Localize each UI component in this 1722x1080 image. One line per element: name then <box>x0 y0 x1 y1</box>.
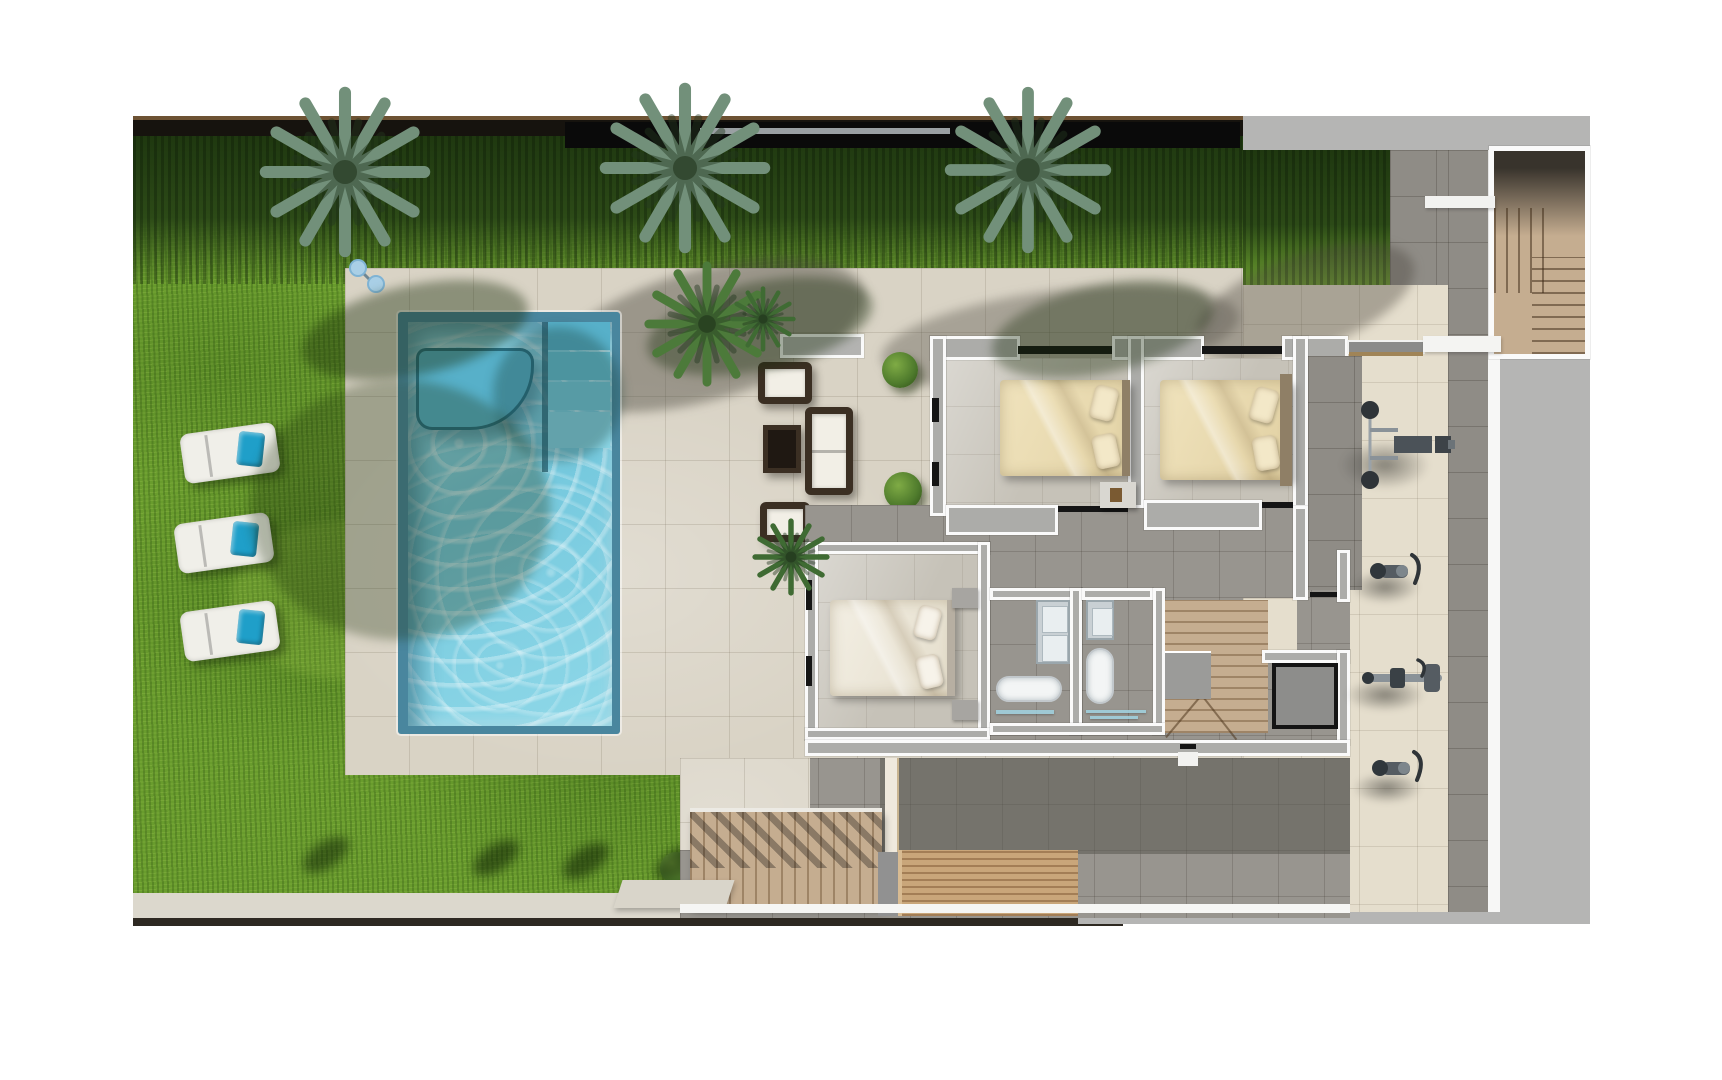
round-bush <box>882 352 918 388</box>
headboard <box>1280 374 1292 486</box>
upper-staircase-spur-wall <box>1425 196 1495 208</box>
sink <box>1042 635 1068 662</box>
wall-bedroom3-top <box>805 542 990 554</box>
wall-gym-access <box>1337 550 1350 602</box>
upper-staircase-enclosure <box>1489 146 1590 359</box>
bed-bedroom3 <box>830 600 955 696</box>
bathroom1-vanity <box>1036 600 1070 664</box>
wall-bedroom3-right <box>978 542 990 740</box>
elevator <box>1272 663 1338 729</box>
wall-bathrooms-divider <box>1070 588 1082 735</box>
window-bedroom3-left <box>806 656 812 686</box>
nightstand <box>1100 482 1136 508</box>
lounger-backrest <box>204 613 213 655</box>
rowing-machine-icon <box>1360 652 1448 704</box>
floor-plan-rendering <box>0 0 1722 1080</box>
lower-terrace-shadow <box>880 758 1350 854</box>
bathroom1-glass-shelf <box>996 710 1054 714</box>
window-bedroom1-left <box>932 462 939 486</box>
nightstand <box>952 588 978 608</box>
lounger-towel <box>236 609 265 646</box>
palm-tree-icon <box>263 90 427 254</box>
palm-tree-icon <box>730 286 796 352</box>
lounger-backrest <box>204 435 213 477</box>
tree-shadow <box>250 380 550 640</box>
window-bedroom1-left <box>932 398 939 422</box>
lower-wall-line <box>680 904 1350 913</box>
lounger-backrest <box>198 525 207 567</box>
lower-terrace-wall <box>885 758 897 854</box>
wall-bedroom1-left <box>930 336 946 516</box>
palm-tree-icon <box>752 518 830 596</box>
bathroom1-bathtub <box>996 676 1062 702</box>
wall-bathrooms-bottom <box>990 723 1165 735</box>
staircase-closet <box>1165 653 1211 699</box>
wall-bedroom2-right <box>1293 336 1308 508</box>
staircase-railing-shadows <box>690 812 882 868</box>
coffee-table <box>763 425 801 473</box>
wall-bathroom2-right <box>1153 588 1165 735</box>
sofa <box>805 407 853 495</box>
bathroom2-shower-glass <box>1086 710 1146 713</box>
exercise-bike-icon <box>1366 545 1430 597</box>
wall-bedroom3-bottom <box>805 728 990 740</box>
bathroom2-shower-glass <box>1090 716 1138 719</box>
wall-bedroom1-bottom <box>946 505 1058 535</box>
staircase-winder-line <box>1165 694 1203 738</box>
staircase-winder-line <box>1199 692 1238 741</box>
wall-bedroom2-right-lower <box>1293 506 1308 600</box>
wall-bedroom2-bottom <box>1144 500 1262 530</box>
sofa-cushion-divider <box>812 450 846 453</box>
nightstand-tray <box>1110 488 1122 502</box>
bed-bedroom1 <box>1000 380 1130 476</box>
headboard <box>947 600 955 696</box>
headboard <box>1122 380 1130 476</box>
gym-terrace-shadow-band <box>1448 150 1488 918</box>
wall-bathroom1-top <box>990 588 1082 600</box>
bed-bedroom2 <box>1160 380 1292 480</box>
gym-entry-landing <box>1423 336 1501 352</box>
sliding-door-bedroom2 <box>1262 502 1293 508</box>
window-top <box>1202 346 1284 354</box>
bathroom2-vanity <box>1086 600 1114 640</box>
rear-door-landing <box>1178 752 1198 766</box>
sink <box>1092 608 1113 636</box>
nightstand <box>952 700 978 720</box>
bathroom2-bathtub <box>1086 648 1114 704</box>
upper-staircase-treads <box>1532 257 1585 354</box>
garden-path-edge <box>133 918 1123 926</box>
sink <box>1042 606 1068 633</box>
rear-door <box>1180 744 1196 749</box>
palm-tree-icon <box>948 90 1108 250</box>
exercise-bike-icon <box>1368 742 1432 794</box>
wall-bathroom2-top <box>1082 588 1153 600</box>
palm-tree-icon <box>603 86 767 250</box>
wall-house-bottom <box>805 740 1350 756</box>
bench-press-icon <box>1358 398 1456 492</box>
